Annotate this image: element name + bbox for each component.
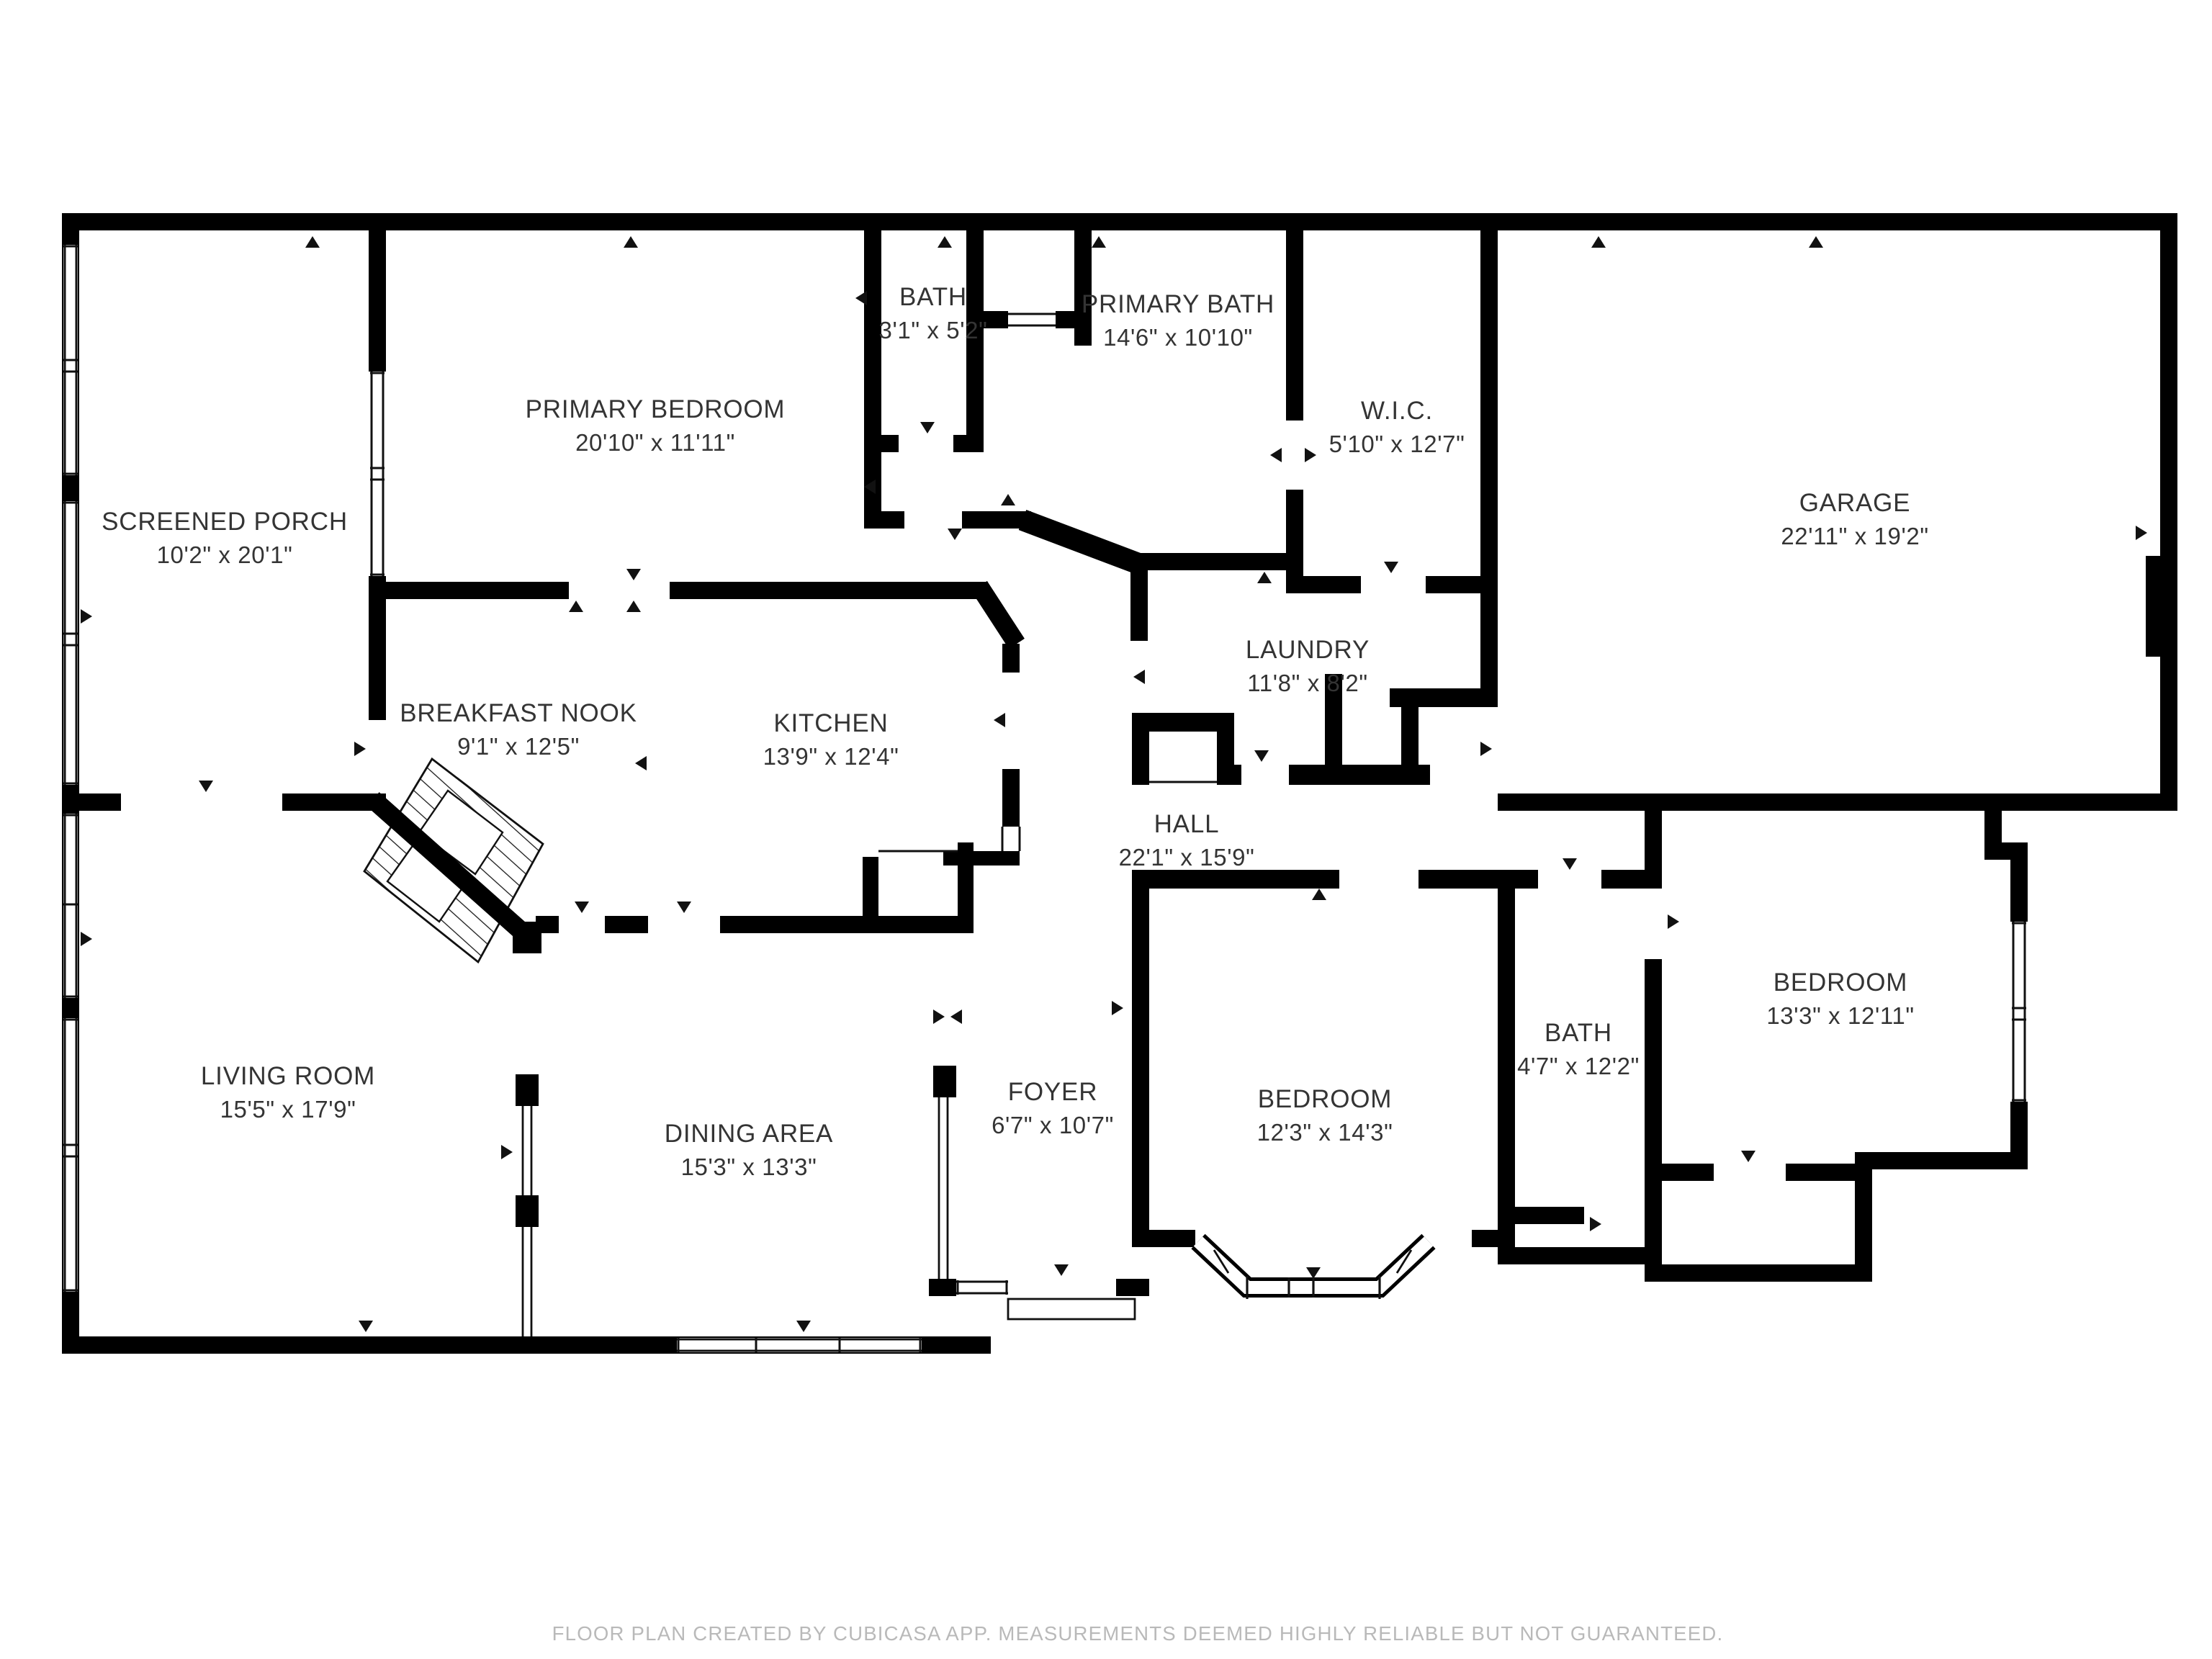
room-dims-bath-2: 4'7" x 12'2" — [1517, 1053, 1640, 1079]
room-name-primary-bedroom: PRIMARY BEDROOM — [526, 395, 786, 423]
room-dims-foyer: 6'7" x 10'7" — [992, 1112, 1114, 1138]
room-dims-breakfast-nook: 9'1" x 12'5" — [457, 733, 580, 760]
room-dims-primary-bedroom: 20'10" x 11'11" — [575, 429, 735, 456]
room-name-hall: HALL — [1154, 810, 1220, 838]
room-dims-primary-bath: 14'6" x 10'10" — [1103, 324, 1253, 351]
floor-plan-page: SCREENED PORCH10'2" x 20'1"PRIMARY BEDRO… — [0, 0, 2212, 1659]
room-name-wic: W.I.C. — [1361, 397, 1433, 425]
room-dims-screened-porch: 10'2" x 20'1" — [157, 541, 293, 568]
room-name-bedroom: BEDROOM — [1258, 1085, 1392, 1113]
room-name-bedroom-2: BEDROOM — [1773, 968, 1907, 997]
room-name-garage: GARAGE — [1799, 489, 1911, 517]
room-name-bath: BATH — [899, 283, 967, 311]
room-dims-bedroom: 12'3" x 14'3" — [1257, 1119, 1393, 1146]
room-name-breakfast-nook: BREAKFAST NOOK — [400, 699, 637, 727]
room-dims-garage: 22'11" x 19'2" — [1781, 523, 1928, 549]
room-dims-bath: 3'1" x 5'2" — [879, 317, 988, 343]
room-dims-dining-area: 15'3" x 13'3" — [681, 1154, 817, 1180]
room-name-primary-bath: PRIMARY BATH — [1082, 290, 1274, 318]
room-name-foyer: FOYER — [1008, 1078, 1098, 1106]
room-dims-bedroom-2: 13'3" x 12'11" — [1766, 1002, 1914, 1029]
room-name-screened-porch: SCREENED PORCH — [102, 508, 348, 536]
room-name-kitchen: KITCHEN — [773, 709, 888, 737]
room-dims-kitchen: 13'9" x 12'4" — [763, 743, 899, 770]
room-dims-laundry: 11'8" x 8'2" — [1247, 670, 1367, 696]
background — [0, 0, 2212, 1659]
floor-plan-drawing: SCREENED PORCH10'2" x 20'1"PRIMARY BEDRO… — [0, 0, 2212, 1659]
footer-disclaimer: FLOOR PLAN CREATED BY CUBICASA APP. MEAS… — [552, 1622, 1724, 1645]
room-name-bath-2: BATH — [1545, 1019, 1612, 1047]
room-dims-living-room: 15'5" x 17'9" — [220, 1096, 356, 1123]
room-name-dining-area: DINING AREA — [665, 1120, 833, 1148]
room-dims-hall: 22'1" x 15'9" — [1119, 844, 1255, 871]
room-dims-wic: 5'10" x 12'7" — [1329, 431, 1465, 457]
room-name-laundry: LAUNDRY — [1246, 636, 1370, 664]
room-name-living-room: LIVING ROOM — [201, 1062, 375, 1090]
